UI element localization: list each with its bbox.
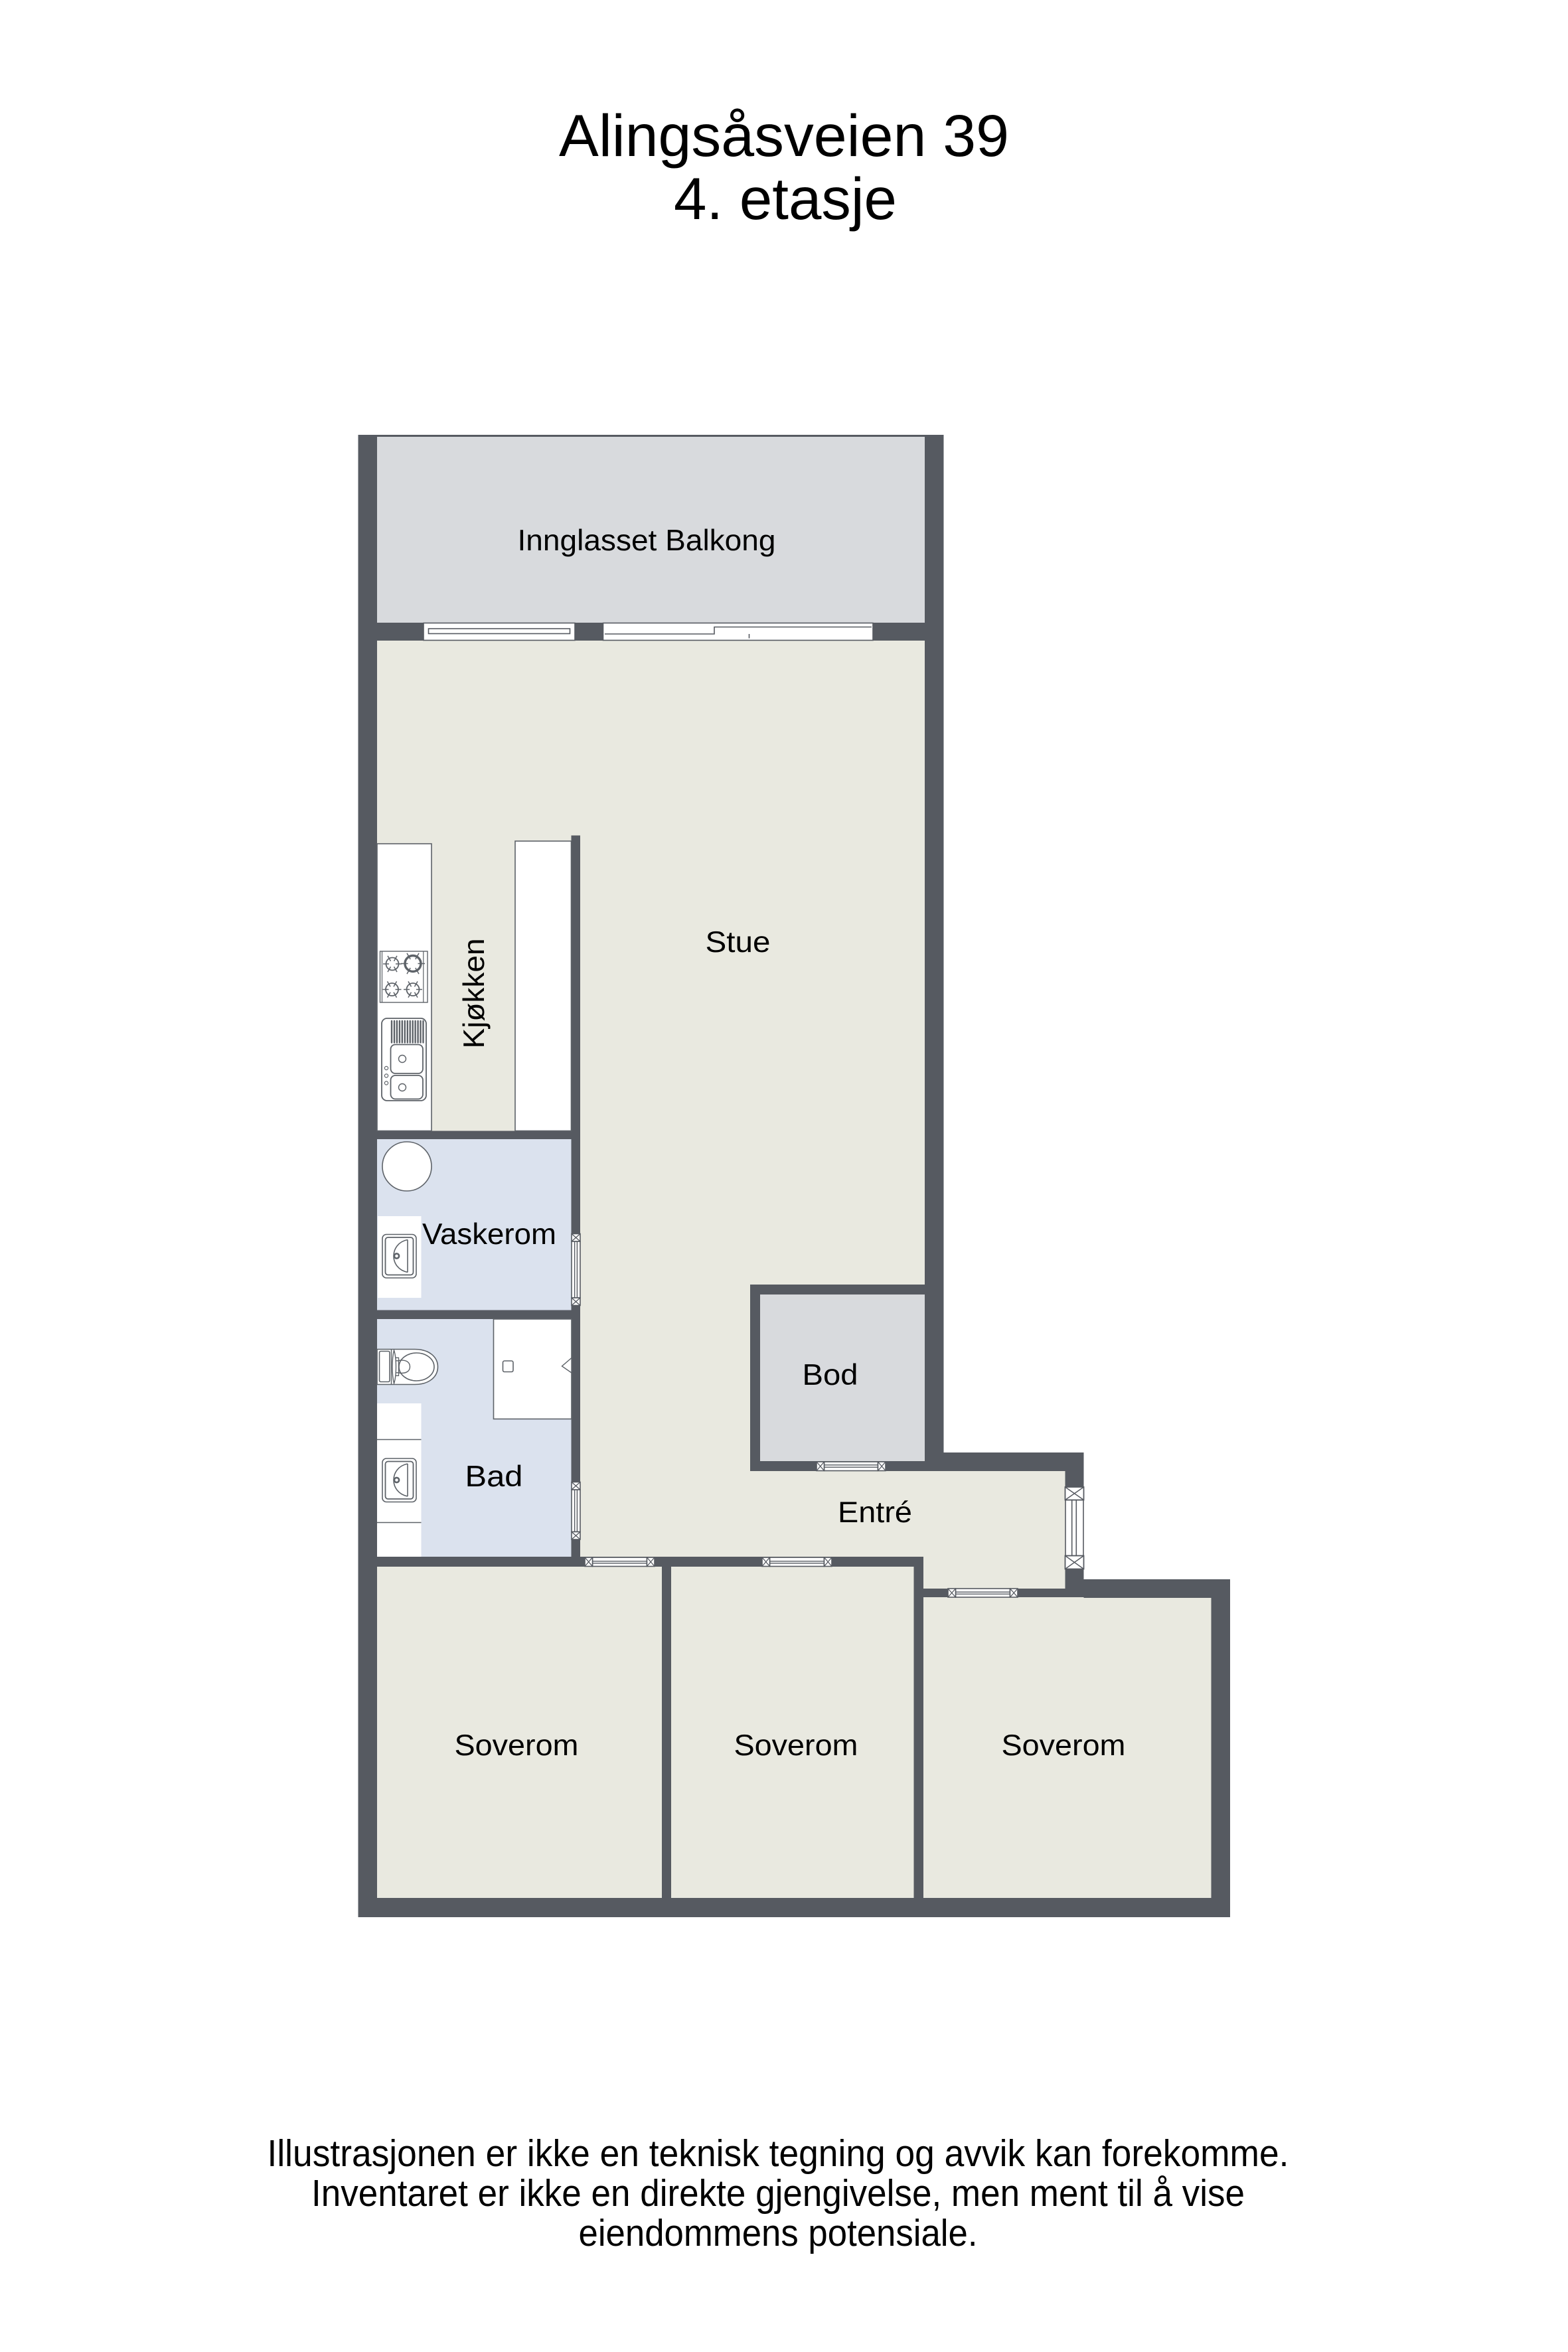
svg-text:Vaskerom: Vaskerom [422,1218,556,1251]
svg-text:Alingsåsveien 39: Alingsåsveien 39 [559,102,1009,169]
svg-text:Soverom: Soverom [1002,1729,1126,1762]
svg-text:Inventaret er ikke en direkte: Inventaret er ikke en direkte gjengivels… [311,2172,1245,2215]
svg-text:Soverom: Soverom [455,1729,579,1762]
svg-text:Stue: Stue [706,926,771,959]
svg-text:Innglasset Balkong: Innglasset Balkong [518,524,776,557]
svg-text:Entré: Entré [838,1496,912,1529]
svg-text:Soverom: Soverom [734,1729,858,1762]
svg-text:4. etasje: 4. etasje [674,165,897,232]
svg-text:Kjøkken: Kjøkken [458,939,491,1049]
svg-text:Bod: Bod [803,1359,858,1391]
svg-text:eiendommens potensiale.: eiendommens potensiale. [579,2212,978,2254]
svg-text:Bad: Bad [465,1460,523,1493]
svg-text:Illustrasjonen er ikke en tekn: Illustrasjonen er ikke en teknisk tegnin… [268,2132,1289,2175]
